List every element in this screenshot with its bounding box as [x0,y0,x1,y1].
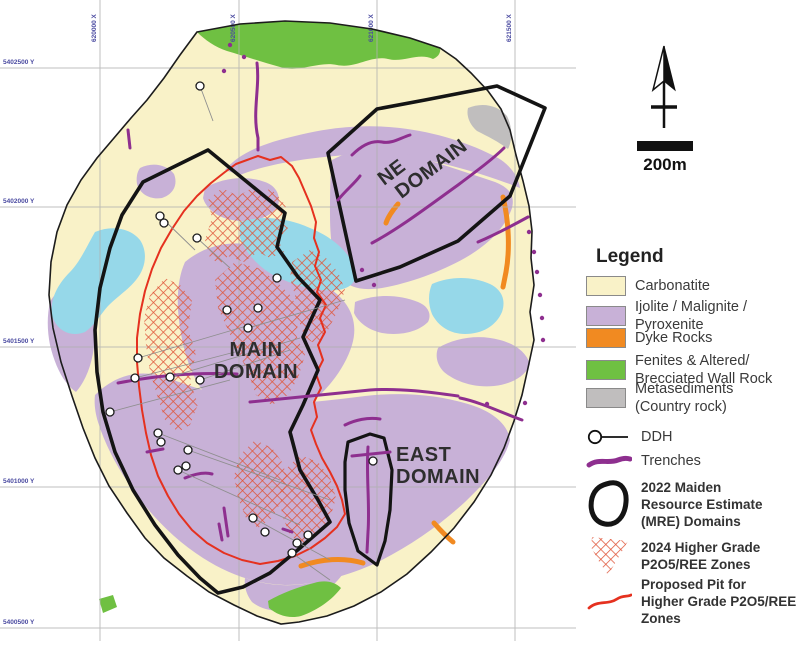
grid-x-label: 621500 X [506,14,513,42]
higher-grade-symbol [586,534,632,578]
legend-row-metasediments: Metasediments (Country rock) [586,380,733,416]
carbonatite-swatch [586,276,626,296]
legend-row-carbonatite: Carbonatite [586,276,710,296]
grid-x-label: 620500 X [230,14,237,42]
east-domain-label-line2: DOMAIN [396,466,480,488]
legend-label-metasediments: Metasediments (Country rock) [635,380,733,416]
grid-x-label: 621000 X [368,14,375,42]
grid-y-label: 5402000 Y [3,198,35,205]
grid-x-label: 620000 X [91,14,98,42]
legend-label-carbonatite: Carbonatite [635,277,710,295]
legend-label-dyke: Dyke Rocks [635,329,712,347]
ddh-symbol [586,428,632,446]
mre-domain-symbol [586,478,632,530]
dyke-swatch [586,328,626,348]
legend-row-ddh: DDH [586,428,672,446]
fenites-swatch [586,360,626,380]
legend-title: Legend [596,246,664,268]
legend-label-mre: 2022 Maiden Resource Estimate (MRE) Doma… [641,479,763,530]
legend-panel: Legend Carbonatite Ijolite / Malignite /… [586,246,800,644]
legend-row-proposed-pit: Proposed Pit for Higher Grade P2O5/REE Z… [586,576,796,627]
main-domain-label-line2: DOMAIN [214,361,298,383]
legend-row-dyke: Dyke Rocks [586,328,712,348]
grid-y-label: 5400500 Y [3,619,35,626]
grid-y-label: 5401500 Y [3,338,35,345]
legend-label-ddh: DDH [641,428,672,446]
legend-label-higher-grade: 2024 Higher Grade P2O5/REE Zones [641,539,760,573]
metasediments-swatch [586,388,626,408]
grid-y-label: 5402500 Y [3,59,35,66]
trench-symbol [586,453,632,469]
grid-y-label: 5401000 Y [3,478,35,485]
east-domain-label-line1: EAST [396,444,451,466]
ijolite-swatch [586,306,626,326]
legend-row-higher-grade: 2024 Higher Grade P2O5/REE Zones [586,534,760,578]
scale-bar-label: 200m [643,155,686,174]
legend-row-trenches: Trenches [586,452,701,470]
main-domain-label-line1: MAIN [229,339,282,361]
geological-map-page: 620000 X 620500 X 621000 X 621500 X 5402… [0,0,800,646]
legend-label-proposed-pit: Proposed Pit for Higher Grade P2O5/REE Z… [641,576,796,627]
scale-bar: 200m [637,141,693,174]
legend-row-mre: 2022 Maiden Resource Estimate (MRE) Doma… [586,478,763,530]
north-arrow [651,46,677,128]
proposed-pit-symbol [586,591,632,613]
legend-label-trenches: Trenches [641,452,701,470]
